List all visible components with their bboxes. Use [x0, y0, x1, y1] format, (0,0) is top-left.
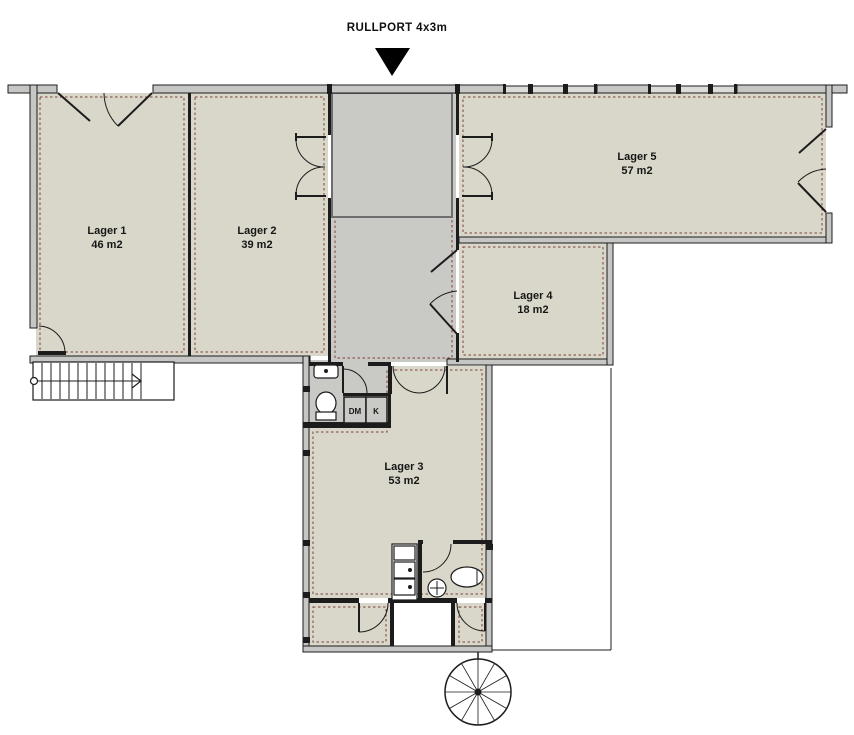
wall-lager1-lager2 — [188, 93, 191, 356]
room-label-lager-1: Lager 1 46 m2 — [52, 224, 162, 252]
lager-4-bottom-wall — [447, 359, 613, 365]
wall-corridor-lager5-upper — [456, 93, 459, 135]
vestibule-right-wall — [451, 603, 455, 646]
room-area: 39 m2 — [202, 238, 312, 252]
toilet-icon — [316, 392, 336, 420]
room-area: 18 m2 — [478, 303, 588, 317]
room-name: Lager 5 — [582, 150, 692, 164]
boundary-lines — [492, 368, 611, 650]
strip-top-wall-left — [309, 598, 359, 603]
lager-3-left-wall — [303, 356, 309, 652]
spiral-staircase — [445, 652, 511, 725]
kitchen-wall-stub — [418, 540, 423, 544]
room-area: 46 m2 — [52, 238, 162, 252]
dishwasher-label: DM — [349, 407, 362, 416]
strip-top-wall-right — [485, 598, 492, 603]
room-area: 53 m2 — [349, 474, 459, 488]
rullport-zone — [332, 93, 452, 217]
lager-3-right-wall — [486, 362, 492, 652]
fridge-label: K — [373, 407, 379, 416]
straight-staircase — [31, 362, 175, 400]
room-label-lager-2: Lager 2 39 m2 — [202, 224, 312, 252]
kitchen-left-wall — [418, 544, 422, 602]
room-name: Lager 4 — [478, 289, 588, 303]
kitchen-top-wall — [453, 540, 492, 544]
wc-toilet-icon — [428, 579, 446, 597]
wall-corridor-lager5-lower — [456, 198, 459, 250]
kitchen-sink-icon — [394, 562, 415, 595]
lager-4-right-wall — [607, 240, 613, 365]
top-wall-c — [597, 85, 650, 93]
room-name: Lager 1 — [52, 224, 162, 238]
floor-plan: RULLPORT 4x3m — [0, 0, 854, 735]
lager-3-bottom-wall — [303, 646, 492, 652]
room-name: Lager 2 — [202, 224, 312, 238]
room-name: Lager 3 — [349, 460, 459, 474]
washbasin-icon — [451, 567, 483, 587]
room-label-lager-4: Lager 4 18 m2 — [478, 289, 588, 317]
window-strip-2 — [650, 86, 737, 93]
lager-5-right-wall-lower — [826, 213, 832, 243]
rullport-arrow-icon — [375, 48, 410, 76]
entry-compartment-right-floor — [455, 603, 486, 646]
wall-lager2-corridor-upper — [328, 93, 331, 135]
wall-lager2-corridor-lower — [328, 198, 331, 362]
floor-plan-drawing: DM K — [0, 0, 854, 735]
wall-corridor-lager4 — [456, 333, 459, 362]
room-label-lager-3: Lager 3 53 m2 — [349, 460, 459, 488]
kitchen-cabinet — [394, 546, 415, 560]
window-strip-1 — [505, 86, 597, 93]
bathroom-top-wall-right — [368, 362, 391, 366]
vestibule-left-wall — [390, 603, 394, 646]
lager-5-bottom-wall — [459, 237, 832, 243]
left-wall — [30, 85, 37, 328]
lager-5-right-wall-upper — [826, 85, 832, 127]
bathroom-mid-wall — [343, 393, 391, 396]
room-label-lager-5: Lager 5 57 m2 — [582, 150, 692, 178]
room-area: 57 m2 — [582, 164, 692, 178]
